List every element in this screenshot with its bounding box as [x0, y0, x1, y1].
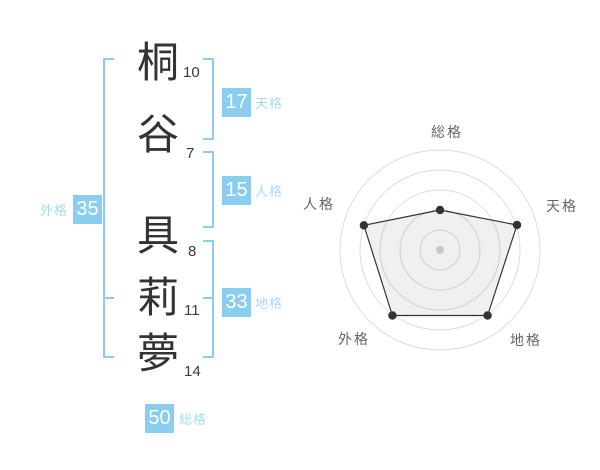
- radar-axis-label-jinkaku: 人格: [303, 194, 335, 214]
- radar-axis-label-soukaku: 総格: [431, 122, 463, 142]
- radar-axis-label-gaikaku: 外格: [338, 329, 370, 349]
- radar-chart: [0, 0, 600, 470]
- radar-axis-label-chikaku: 地格: [510, 330, 542, 350]
- radar-axis-label-tenkaku: 天格: [546, 196, 578, 216]
- name-fortune-panel: 桐 谷 具 莉 夢 10 7 8 11 14 17 天格 15 人格 33 地格…: [0, 0, 600, 470]
